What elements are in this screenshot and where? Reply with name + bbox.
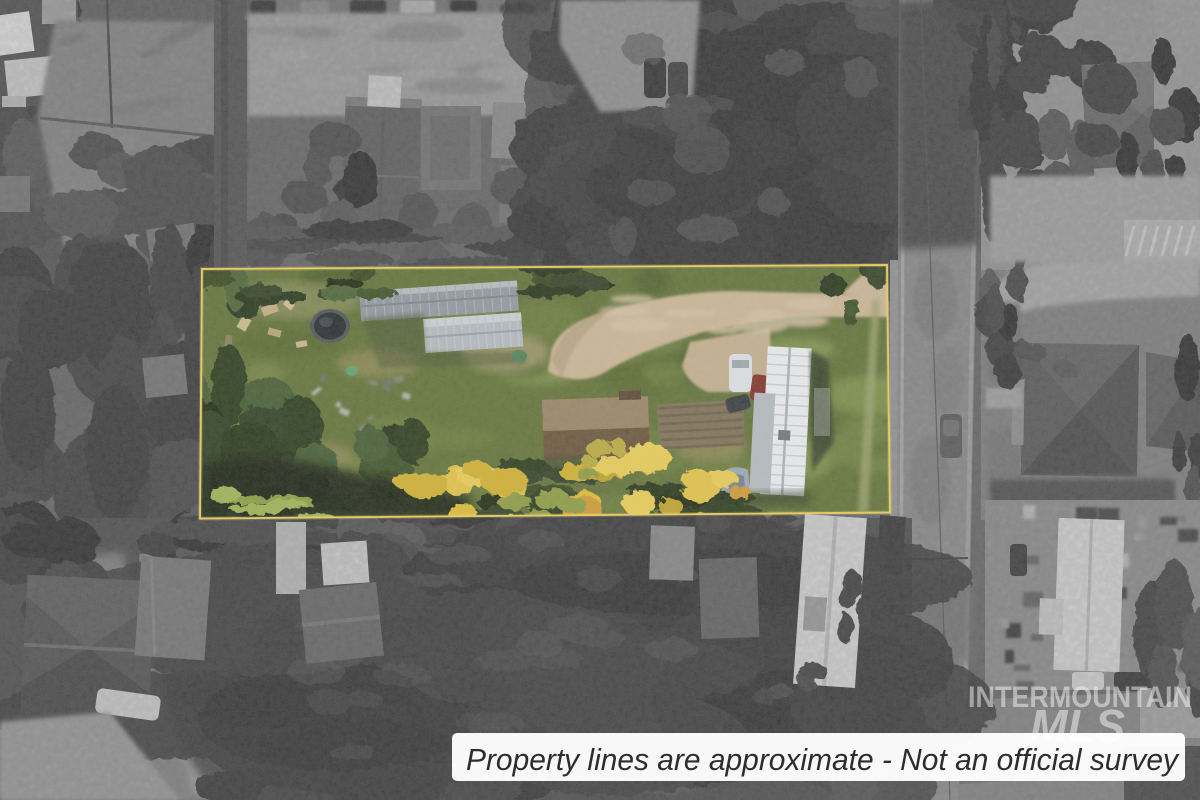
svg-text:Property lines are approximate: Property lines are approximate - Not an … — [466, 742, 1180, 777]
